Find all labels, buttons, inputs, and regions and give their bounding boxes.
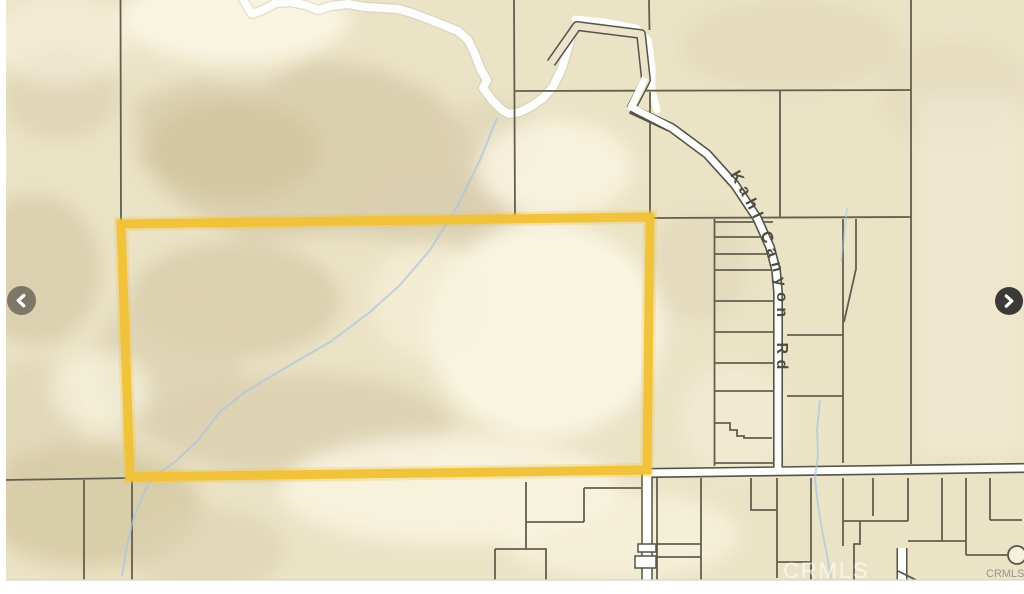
svg-text:CRMLS: CRMLS (986, 568, 1024, 580)
svg-text:CRMLS: CRMLS (783, 558, 869, 583)
